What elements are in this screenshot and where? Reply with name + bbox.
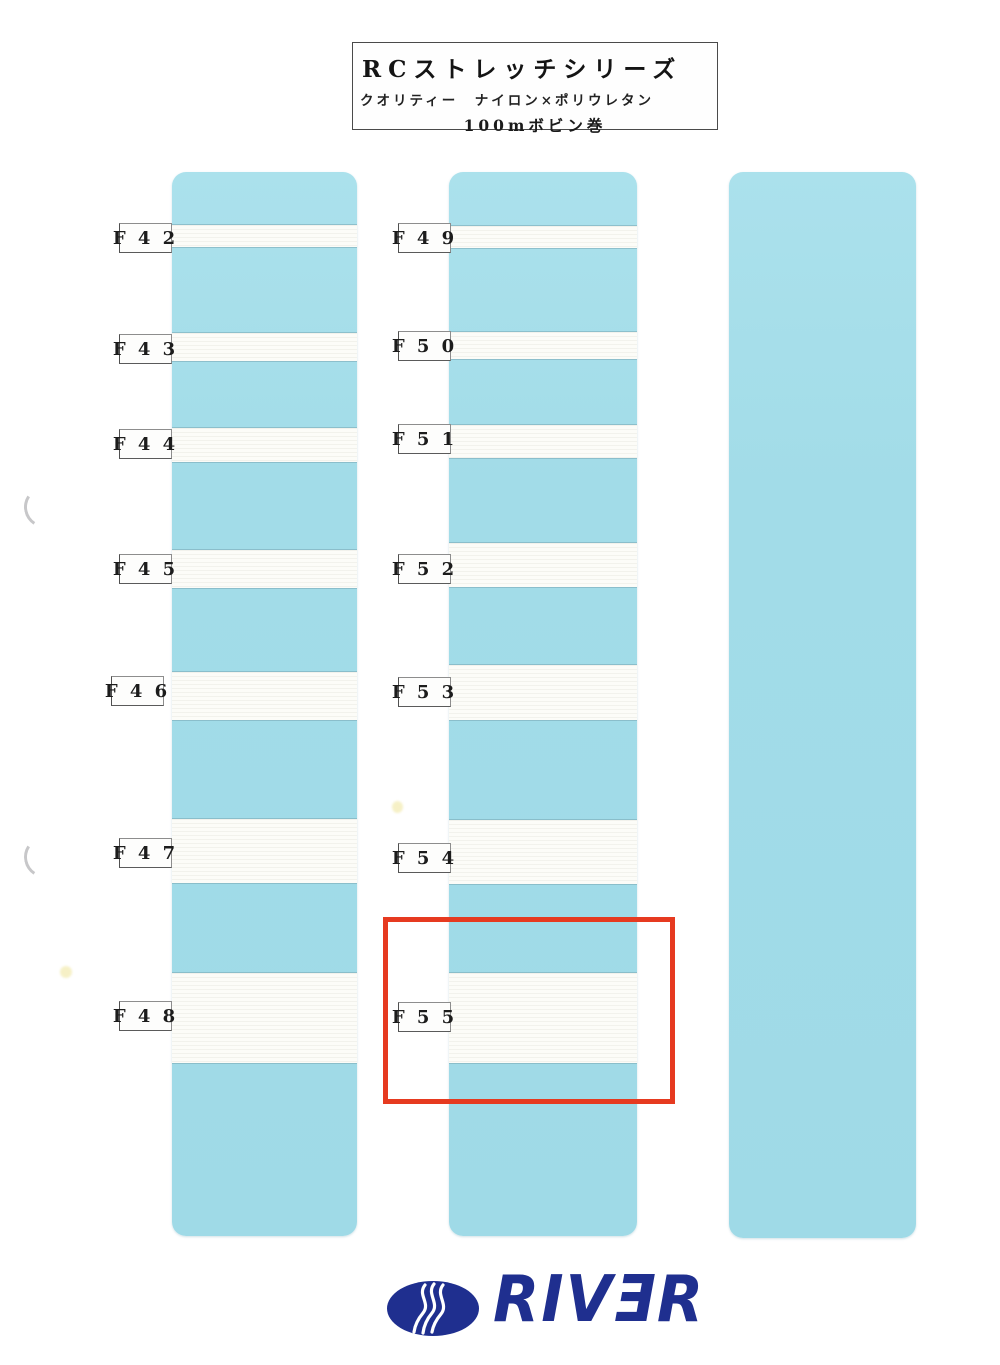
quality-subtitle: クオリティー ナイロン×ポリウレタン: [353, 89, 717, 109]
river-logo-ellipse-icon: [387, 1281, 479, 1336]
code-label-f49: F 4 9: [398, 223, 451, 253]
code-label-f52: F 5 2: [398, 554, 451, 584]
river-logo: RIVƎR: [387, 1262, 717, 1352]
code-label-f47: F 4 7: [119, 838, 172, 868]
code-label-f46: F 4 6: [111, 676, 164, 706]
sample-panel-left: [172, 172, 357, 1236]
sample-strip-f51: [449, 425, 637, 458]
sample-strip-f42: [172, 225, 357, 247]
sample-strip-f44: [172, 428, 357, 462]
title-box: RCストレッチシリーズ クオリティー ナイロン×ポリウレタン 100mボビン巻: [352, 42, 718, 130]
sample-strip-f53: [449, 665, 637, 720]
sample-strip-f46: [172, 672, 357, 720]
bobbin-subtitle: 100mボビン巻: [353, 114, 717, 136]
river-logo-wordmark: RIVƎR: [493, 1264, 705, 1336]
code-label-f53: F 5 3: [398, 677, 451, 707]
highlight-rectangle-f55: [383, 917, 675, 1104]
code-label-f48: F 4 8: [119, 1001, 172, 1031]
series-title: RCストレッチシリーズ: [353, 50, 717, 84]
sample-strip-f49: [449, 226, 637, 248]
hole-punch-bottom: [20, 832, 70, 882]
sample-strip-f45: [172, 550, 357, 588]
catalog-page: RCストレッチシリーズ クオリティー ナイロン×ポリウレタン 100mボビン巻 …: [0, 0, 1000, 1365]
sample-strip-f54: [449, 820, 637, 884]
code-label-f54: F 5 4: [398, 843, 451, 873]
hole-punch-top: [20, 482, 70, 532]
code-label-f44: F 4 4: [119, 429, 172, 459]
code-label-f43: F 4 3: [119, 334, 172, 364]
sample-strip-f52: [449, 543, 637, 587]
scan-speck: [392, 801, 403, 813]
code-label-f51: F 5 1: [398, 424, 451, 454]
sample-strip-f43: [172, 333, 357, 361]
sample-strip-f48: [172, 973, 357, 1063]
code-label-f45: F 4 5: [119, 554, 172, 584]
sample-strip-f50: [449, 332, 637, 359]
scan-speck: [60, 966, 72, 978]
code-label-f50: F 5 0: [398, 331, 451, 361]
sample-strip-f47: [172, 819, 357, 883]
code-label-f42: F 4 2: [119, 223, 172, 253]
sample-panel-right-blank: [729, 172, 916, 1238]
